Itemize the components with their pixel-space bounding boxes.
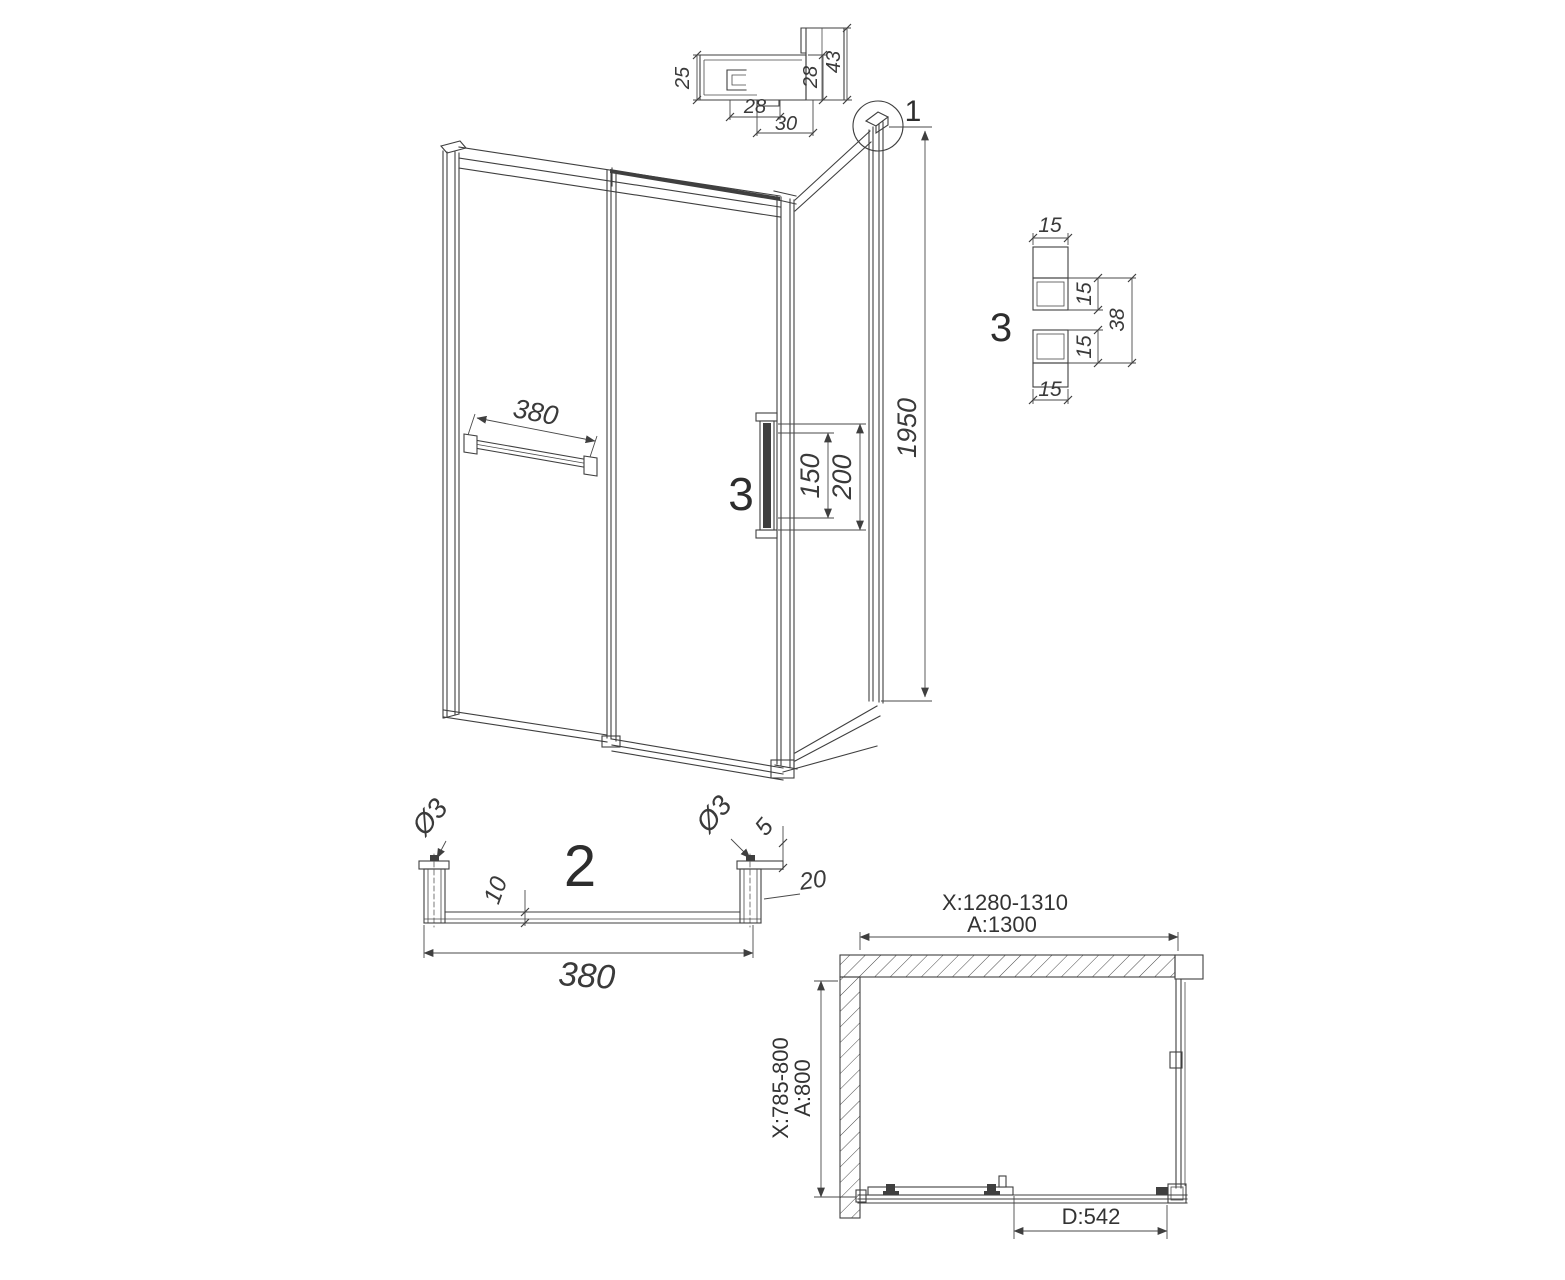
shower-enclosure-drawing: 25 28 30 28 43 — [0, 0, 1565, 1280]
front-view: 380 150 200 3 1950 1 — [441, 95, 932, 780]
towel-bar — [464, 434, 597, 476]
plan-walls — [840, 955, 1203, 1218]
dim-1950: 1950 — [892, 398, 922, 458]
dim-30: 30 — [775, 113, 797, 135]
wall-profile-dimensions: 25 28 30 28 43 — [672, 24, 852, 137]
wall-profile-detail: 25 28 30 28 43 — [672, 24, 852, 137]
dim-5: 5 — [750, 813, 780, 841]
dim-28-right: 28 — [800, 66, 822, 89]
corner-profile-dimensions: 15 15 15 15 38 3 — [990, 214, 1136, 404]
corner-profile-sections — [1033, 247, 1068, 387]
dim-15-bottom: 15 — [1038, 378, 1062, 401]
plan-door-track — [856, 1176, 1187, 1203]
dim-43: 43 — [823, 51, 845, 73]
plan-view: X:1280-1310 A:1300 X:785-800 A:800 D:542 — [768, 890, 1203, 1239]
corner-profile-detail: 15 15 15 15 38 3 — [990, 214, 1136, 404]
technical-drawing-page: 25 28 30 28 43 — [0, 0, 1565, 1280]
height-dimension: 1950 — [881, 127, 932, 701]
dim-15-right-top: 15 — [1073, 282, 1096, 306]
dim-10: 10 — [479, 873, 514, 908]
dim-15-top: 15 — [1038, 214, 1062, 237]
plan-door-width: D:542 — [1062, 1204, 1121, 1229]
dim-150: 150 — [795, 453, 825, 498]
callout-3-front: 3 — [728, 468, 754, 520]
corner-callout: 1 — [853, 95, 921, 151]
callout-3-detail: 3 — [990, 306, 1012, 350]
dim-dia3-right: Ø3 — [689, 789, 738, 839]
dim-dia3-left: Ø3 — [405, 792, 454, 842]
dim-200: 200 — [827, 454, 857, 500]
plan-width-nominal: A:1300 — [967, 912, 1037, 937]
dim-380-detail: 380 — [557, 955, 616, 997]
dim-20: 20 — [797, 865, 829, 896]
handle-dimensions: 150 200 3 — [728, 424, 866, 530]
dim-38: 38 — [1106, 308, 1129, 332]
towel-bar-section — [419, 854, 783, 927]
wall-end — [1175, 955, 1203, 979]
dim-28-bottom: 28 — [743, 96, 766, 118]
callout-2: 2 — [564, 834, 596, 899]
left-wall — [840, 977, 860, 1218]
detail-circle — [853, 101, 903, 151]
callout-1: 1 — [905, 95, 922, 128]
towel-bar-dimension: 380 — [468, 393, 597, 457]
towel-bar-detail-dimensions: Ø3 Ø3 5 10 20 380 2 — [405, 789, 828, 997]
dim-25: 25 — [672, 66, 694, 90]
top-wall — [840, 955, 1175, 977]
plan-handle — [999, 1176, 1006, 1187]
dim-towel-380: 380 — [511, 393, 561, 431]
dim-15-right-bottom: 15 — [1073, 335, 1096, 359]
door-handle — [756, 413, 777, 538]
plan-side-panel — [1168, 979, 1186, 1203]
plan-depth-nominal: A:800 — [790, 1059, 815, 1117]
towel-bar-detail: Ø3 Ø3 5 10 20 380 2 — [405, 789, 828, 997]
